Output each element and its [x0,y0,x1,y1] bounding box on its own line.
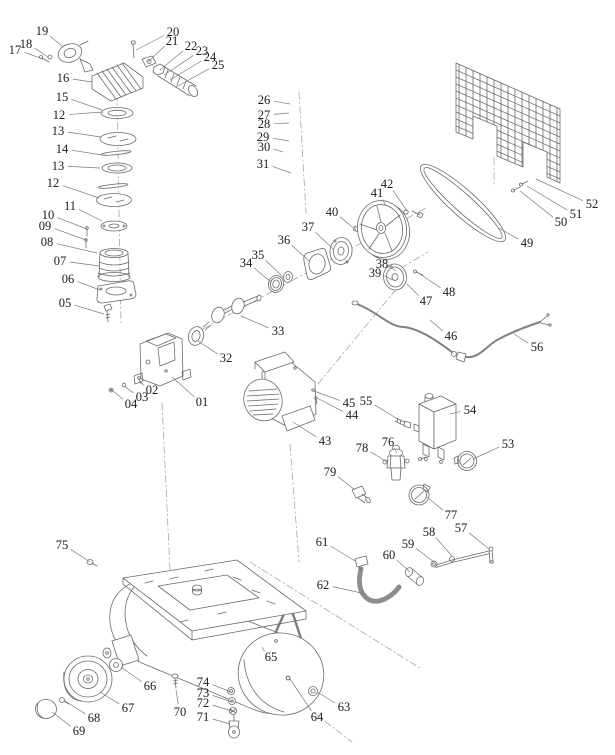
svg-text:50: 50 [555,215,568,229]
svg-text:06: 06 [62,272,75,286]
svg-text:49: 49 [521,236,534,250]
part-label-50: 50 [520,191,567,229]
part-label-35: 35 [252,248,284,278]
svg-text:51: 51 [570,207,583,221]
part-label-15: 15 [56,90,102,110]
pressure-switch [414,394,456,464]
svg-text:32: 32 [220,351,233,365]
svg-text:48: 48 [443,285,456,299]
svg-text:76: 76 [382,435,395,449]
svg-text:33: 33 [272,324,285,338]
part-label-43: 43 [293,422,331,448]
svg-text:57: 57 [455,521,468,535]
part-label-65: 65 [262,647,277,664]
svg-text:68: 68 [88,711,101,725]
hub-cap [36,700,57,719]
part-label-67: 67 [100,692,134,715]
valve-plate-stack [97,108,137,207]
svg-text:01: 01 [196,395,209,409]
svg-text:46: 46 [445,329,458,343]
part-label-79: 79 [324,465,355,490]
head-gasket [101,221,127,231]
svg-text:31: 31 [257,157,270,171]
part-label-12: 12 [47,176,99,198]
elbow-fitting [352,486,371,504]
spacer-ring [282,271,293,284]
part-label-07: 07 [54,254,99,268]
svg-text:65: 65 [265,650,278,664]
svg-text:25: 25 [212,58,225,72]
part-label-49: 49 [499,228,533,250]
svg-text:71: 71 [197,710,210,724]
svg-text:08: 08 [41,235,54,249]
svg-text:70: 70 [174,705,187,719]
discharge-hose [355,556,399,601]
silencer-bolt [153,64,200,98]
part-label-24: 24 [170,50,217,80]
svg-text:35: 35 [252,248,265,262]
svg-text:53: 53 [502,437,515,451]
svg-text:10: 10 [42,208,55,222]
part-label-06: 06 [62,272,100,290]
part-label-33: 33 [241,316,284,338]
head-bolt [132,41,136,58]
part-label-59: 59 [402,537,434,562]
svg-text:63: 63 [338,700,351,714]
svg-text:79: 79 [324,465,337,479]
part-label-56: 56 [514,334,543,354]
part-label-19: 19 [36,24,63,47]
small-bolts [85,227,89,248]
check-valve [383,446,426,481]
v-belt [413,156,514,250]
part-label-21: 21 [148,34,178,62]
plug-ring [309,687,318,696]
bearing-cover [328,236,354,266]
part-label-28: 28 [258,117,289,131]
svg-text:12: 12 [47,176,60,190]
part-label-77: 77 [427,497,457,522]
part-label-31: 31 [257,157,291,173]
guard-screws [512,181,529,192]
electric-motor [238,352,316,431]
svg-text:28: 28 [258,117,271,131]
svg-text:54: 54 [464,403,477,417]
part-label-71: 71 [197,710,230,724]
crankshaft [203,295,262,330]
bearing [267,274,285,294]
part-label-47: 47 [407,284,432,308]
unloader-bolt [395,418,411,428]
svg-text:13: 13 [52,159,65,173]
part-label-01: 01 [172,377,208,409]
tank-bolt [87,560,97,567]
part-label-52: 52 [536,179,598,211]
part-label-55: 55 [360,394,396,418]
svg-text:07: 07 [54,254,67,268]
svg-text:12: 12 [53,108,66,122]
svg-text:43: 43 [319,434,332,448]
svg-text:36: 36 [278,233,291,247]
pressure-gauge-small [409,484,430,505]
svg-text:62: 62 [317,578,330,592]
cover-gasket [304,248,331,279]
svg-text:75: 75 [56,538,69,552]
part-label-04: 04 [112,390,138,411]
pulley-bolt [414,270,424,275]
svg-text:42: 42 [381,177,394,191]
svg-text:15: 15 [56,90,69,104]
svg-text:55: 55 [360,394,373,408]
svg-text:19: 19 [36,24,49,38]
part-label-08: 08 [41,235,97,253]
svg-text:59: 59 [402,537,415,551]
svg-text:40: 40 [326,205,339,219]
svg-text:44: 44 [346,408,359,422]
svg-text:39: 39 [369,266,382,280]
part-label-61: 61 [316,535,355,561]
crankcase [134,333,191,386]
exploded-view-drawing: 0102030405060708091011121314131215161718… [0,0,615,755]
cylinder-head [92,63,143,101]
part-label-18: 18 [20,37,48,57]
svg-text:60: 60 [383,548,396,562]
svg-text:45: 45 [343,396,356,410]
outlet-pipe [431,547,493,568]
part-label-16: 16 [57,71,92,85]
part-label-60: 60 [383,548,410,572]
svg-text:26: 26 [258,93,271,107]
cylinder-sleeve [98,249,130,282]
part-label-68: 68 [65,701,100,725]
part-label-40: 40 [326,205,356,230]
pressure-gauge-large [454,452,477,471]
svg-text:04: 04 [125,397,138,411]
svg-text:18: 18 [20,37,33,51]
svg-text:37: 37 [302,220,315,234]
svg-text:69: 69 [73,724,86,738]
svg-text:64: 64 [311,710,324,724]
part-label-70: 70 [174,690,187,719]
part-label-12: 12 [53,108,103,122]
parts-diagram-canvas: 0102030405060708091011121314131215161718… [0,0,615,755]
svg-text:03: 03 [136,390,149,404]
switch-power-cord [456,314,551,362]
svg-text:30: 30 [258,140,271,154]
mount-bolt [172,674,178,688]
svg-text:47: 47 [420,294,433,308]
part-label-26: 26 [258,93,290,107]
svg-text:16: 16 [57,71,70,85]
part-label-13: 13 [52,159,100,173]
svg-text:78: 78 [356,441,369,455]
part-label-30: 30 [258,140,283,154]
part-label-69: 69 [52,712,85,738]
svg-text:11: 11 [64,199,76,213]
part-label-32: 32 [198,341,232,365]
svg-text:66: 66 [144,679,157,693]
part-label-66: 66 [121,667,156,693]
svg-text:05: 05 [59,296,72,310]
svg-text:74: 74 [197,675,210,689]
part-label-53: 53 [473,437,514,459]
part-label-37: 37 [302,220,333,249]
svg-text:52: 52 [586,197,599,211]
part-label-13: 13 [52,124,101,138]
part-label-57: 57 [455,521,489,549]
base-gasket [97,281,136,303]
svg-text:56: 56 [531,340,544,354]
svg-text:61: 61 [316,535,329,549]
part-label-11: 11 [64,199,102,221]
wheel-washer [110,659,123,672]
part-label-75: 75 [56,538,90,562]
svg-text:77: 77 [445,508,458,522]
svg-text:13: 13 [52,124,65,138]
part-label-58: 58 [423,525,452,556]
part-label-36: 36 [278,233,309,261]
svg-text:14: 14 [56,142,69,156]
svg-text:67: 67 [122,701,135,715]
stud-bolt [104,304,112,322]
svg-text:21: 21 [166,34,179,48]
svg-text:58: 58 [423,525,436,539]
part-label-14: 14 [56,142,102,156]
